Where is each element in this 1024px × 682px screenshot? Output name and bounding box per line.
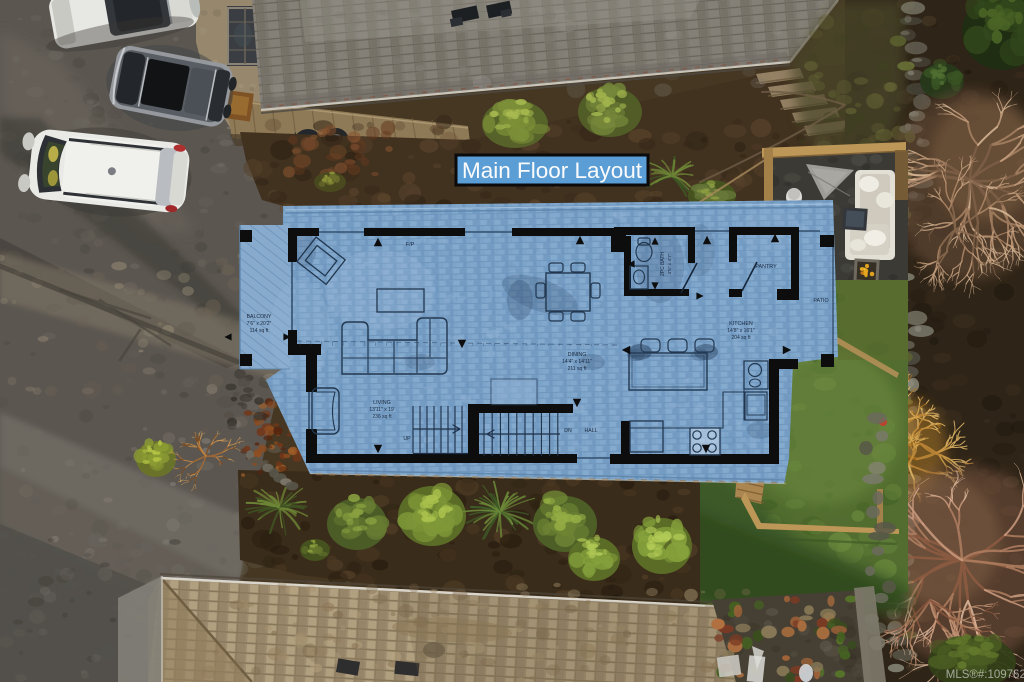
svg-text:2PC BATH: 2PC BATH <box>660 252 666 276</box>
svg-text:F/P: F/P <box>406 242 415 248</box>
svg-text:Main Floor Layout: Main Floor Layout <box>462 158 643 183</box>
svg-text:LIVING: LIVING <box>373 400 391 406</box>
svg-text:204 sq ft: 204 sq ft <box>731 335 751 341</box>
svg-text:UP: UP <box>403 436 411 442</box>
svg-text:14'8" x 16'1": 14'8" x 16'1" <box>727 328 755 334</box>
svg-text:PANTRY: PANTRY <box>755 264 777 270</box>
svg-text:7'6" x 20'2": 7'6" x 20'2" <box>247 321 272 327</box>
svg-text:HALL: HALL <box>585 428 598 434</box>
svg-text:PATIO: PATIO <box>813 298 828 304</box>
svg-text:KITCHEN: KITCHEN <box>729 321 753 327</box>
svg-text:MLS®#:1097625: MLS®#:1097625 <box>946 669 1024 681</box>
svg-text:114 sq ft: 114 sq ft <box>250 328 269 334</box>
svg-text:236 sq ft: 236 sq ft <box>372 414 392 420</box>
svg-text:DINING: DINING <box>568 352 587 358</box>
svg-text:4'5" x 4'7": 4'5" x 4'7" <box>667 253 673 274</box>
svg-text:211 sq ft: 211 sq ft <box>568 366 587 372</box>
svg-text:DN: DN <box>564 428 572 434</box>
svg-text:BALCONY: BALCONY <box>247 314 272 320</box>
svg-text:14'4" x 14'11": 14'4" x 14'11" <box>562 359 592 365</box>
svg-text:13'11" x 19': 13'11" x 19' <box>369 407 394 413</box>
